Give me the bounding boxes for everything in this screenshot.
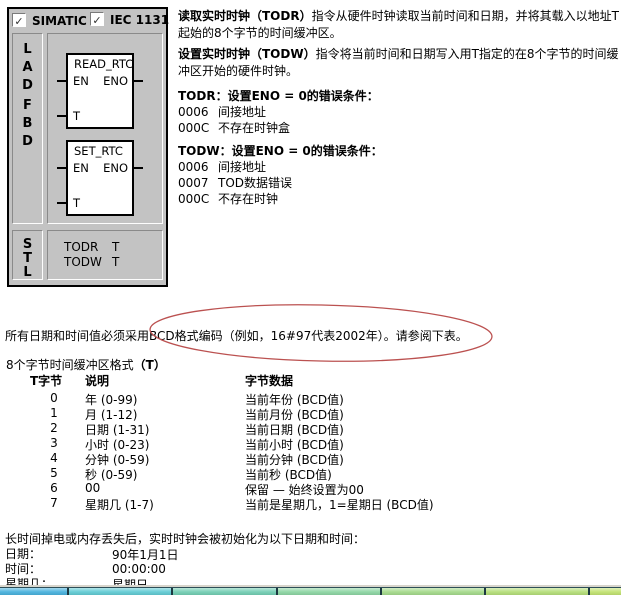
table-row: 1 月 (1-12) 当前月份 (BCD值)	[0, 406, 621, 421]
error-text: 不存在时钟盒	[218, 121, 290, 135]
error-code: 0007	[178, 175, 218, 191]
byte-index: 5	[30, 466, 78, 480]
todr-error-heading: TODR：设置ENO = 0的错误条件：	[178, 88, 619, 104]
pin-t-label: T	[73, 196, 80, 210]
lad-fbd-letter: F	[13, 98, 42, 113]
iec1131-checkbox[interactable]: ✓	[90, 12, 104, 26]
set-rtc-block: SET_RTC EN ENO T	[66, 140, 134, 216]
input-wire-stub	[57, 80, 66, 82]
stl-language-column: S T L	[12, 230, 43, 280]
buffer-format-caption: 8个字节时间缓冲区格式（T）	[6, 356, 166, 373]
taskbar-buttons-strip	[0, 587, 621, 595]
table-row: 3 小时 (0-23) 当前小时 (BCD值)	[0, 436, 621, 451]
read-rtc-block: READ_RTC EN ENO T	[66, 53, 134, 129]
pin-en-label: EN	[73, 74, 89, 88]
defaults-intro: 长时间掉电或内存丢失后，实时时钟会被初始化为以下日期和时间：	[5, 530, 365, 547]
error-code: 0006	[178, 104, 218, 120]
lad-fbd-letter: B	[13, 116, 42, 131]
input-wire-stub	[57, 202, 66, 204]
caption-t: （T）	[134, 358, 166, 372]
todw-term: 设置实时时钟（TODW）	[178, 47, 316, 61]
todw-paragraph: 设置实时时钟（TODW）指令将当前时间和日期写入用T指定的在8个字节的时间缓冲区…	[178, 46, 619, 80]
input-wire-stub	[57, 115, 66, 117]
taskbar-button[interactable]	[173, 588, 276, 595]
iec1131-checkbox-label: IEC 1131	[110, 13, 169, 27]
column-header: 说明	[85, 372, 109, 389]
output-wire-stub	[134, 80, 143, 82]
byte-index: 7	[30, 496, 78, 510]
lad-fbd-letter: D	[13, 78, 42, 93]
stl-letter: T	[13, 251, 42, 266]
simatic-checkbox-group[interactable]: ✓ SIMATIC	[12, 13, 87, 29]
table-row: 7 星期几 (1-7) 当前是星期几，1=星期日 (BCD值)	[0, 496, 621, 511]
taskbar	[0, 585, 621, 595]
stl-operand: T	[112, 255, 119, 269]
error-line: 0006间接地址	[178, 159, 619, 175]
taskbar-button[interactable]	[0, 588, 67, 595]
bcd-format-note: 所有日期和时间值必须采用BCD格式编码（例如，16#97代表2002年）。请参阅…	[5, 327, 468, 344]
pin-eno-label: ENO	[103, 161, 128, 175]
error-line: 0007TOD数据错误	[178, 175, 619, 191]
stl-operand: T	[112, 240, 119, 254]
byte-index: 1	[30, 406, 78, 420]
stl-mnemonics-area: TODR T TODW T	[47, 230, 163, 280]
input-wire-stub	[57, 167, 66, 169]
taskbar-button[interactable]	[69, 588, 171, 595]
instruction-panel: ✓ SIMATIC ✓ IEC 1131 L A D F B D READ_RT…	[7, 7, 168, 287]
column-header: 字节数据	[245, 372, 293, 389]
default-value: 90年1月1日	[112, 546, 179, 563]
pin-eno-label: ENO	[103, 74, 128, 88]
pin-t-label: T	[73, 109, 80, 123]
table-row: 6 00 保留 — 始终设置为00	[0, 481, 621, 496]
byte-index: 2	[30, 421, 78, 435]
error-code: 000C	[178, 120, 218, 136]
byte-index: 3	[30, 436, 78, 450]
taskbar-button[interactable]	[486, 588, 588, 595]
todr-term: 读取实时时钟（TODR）	[178, 9, 312, 23]
error-line: 0006间接地址	[178, 104, 619, 120]
error-text: 间接地址	[218, 105, 266, 119]
table-row: 5 秒 (0-59) 当前秒 (BCD值)	[0, 466, 621, 481]
check-icon: ✓	[92, 14, 101, 27]
error-code: 000C	[178, 191, 218, 207]
byte-index: 0	[30, 391, 78, 405]
error-line: 000C不存在时钟盒	[178, 120, 619, 136]
stl-letter: S	[13, 237, 42, 252]
stl-letter: L	[13, 265, 42, 280]
table-row: 0 年 (0-99) 当前年份 (BCD值)	[0, 391, 621, 406]
error-code: 0006	[178, 159, 218, 175]
stl-mnemonic: TODR	[64, 240, 98, 254]
error-text: 间接地址	[218, 160, 266, 174]
lad-fbd-letter: L	[13, 42, 42, 57]
instruction-description: 读取实时时钟（TODR）指令从硬件时钟读取当前时间和日期，并将其载入以地址T起始…	[178, 8, 619, 207]
error-line: 000C不存在时钟	[178, 191, 619, 207]
table-row: 2 日期 (1-31) 当前日期 (BCD值)	[0, 421, 621, 436]
taskbar-button[interactable]	[382, 588, 484, 595]
lad-fbd-letter: D	[13, 134, 42, 149]
todw-error-heading: TODW：设置ENO = 0的错误条件：	[178, 143, 619, 159]
simatic-checkbox-label: SIMATIC	[32, 14, 87, 28]
byte-desc: 星期几 (1-7)	[85, 496, 154, 513]
lad-fbd-letter: A	[13, 60, 42, 75]
default-value: 00:00:00	[112, 562, 166, 576]
pin-en-label: EN	[73, 161, 89, 175]
check-icon: ✓	[14, 15, 23, 28]
block-title: SET_RTC	[74, 144, 123, 158]
block-title: READ_RTC	[74, 57, 133, 71]
lad-fbd-language-column: L A D F B D	[12, 33, 43, 224]
byte-desc: 00	[85, 481, 100, 495]
taskbar-button[interactable]	[278, 588, 380, 595]
table-header-row: T字节 说明 字节数据	[0, 372, 621, 387]
iec1131-checkbox-group[interactable]: ✓ IEC 1131	[90, 12, 168, 28]
taskbar-button[interactable]	[590, 588, 621, 595]
error-text: 不存在时钟	[218, 192, 278, 206]
caption-text: 8个字节时间缓冲区格式	[6, 358, 134, 372]
error-text: TOD数据错误	[218, 176, 292, 190]
table-row: 4 分钟 (0-59) 当前分钟 (BCD值)	[0, 451, 621, 466]
byte-data: 当前是星期几，1=星期日 (BCD值)	[245, 496, 434, 513]
column-header: T字节	[30, 372, 78, 389]
instruction-blocks-area: READ_RTC EN ENO T SET_RTC EN ENO T	[47, 33, 163, 224]
stl-mnemonic: TODW	[64, 255, 102, 269]
byte-index: 4	[30, 451, 78, 465]
output-wire-stub	[134, 167, 143, 169]
byte-index: 6	[30, 481, 78, 495]
todr-paragraph: 读取实时时钟（TODR）指令从硬件时钟读取当前时间和日期，并将其载入以地址T起始…	[178, 8, 619, 42]
simatic-checkbox[interactable]: ✓	[12, 13, 26, 27]
